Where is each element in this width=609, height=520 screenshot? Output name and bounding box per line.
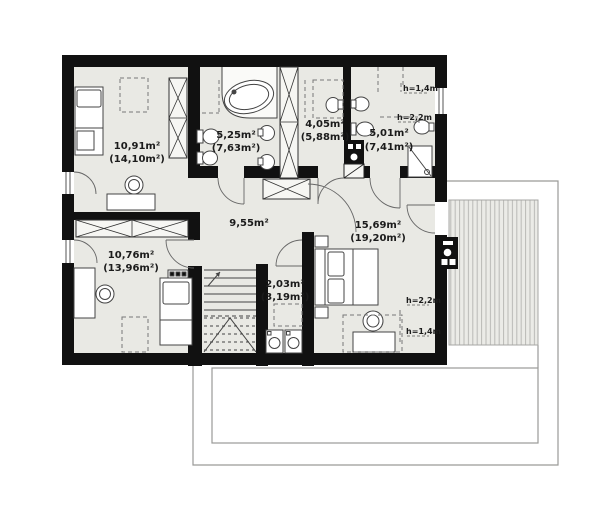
duct-stack-icon — [344, 140, 364, 178]
room-master-area: 15,69m² — [355, 220, 401, 231]
room-master-total: (19,20m²) — [350, 233, 406, 244]
room-bathroom-main-area: 5,25m² — [216, 130, 255, 141]
bed-icon — [160, 270, 192, 345]
floor-plan-page: 10,91m² (14,10m²) 5,25m² (7,63m²) 4,05m²… — [0, 0, 609, 520]
room-top-middle-total: (5,88m²) — [301, 132, 350, 143]
height-label-bottom-low: h=1,4m — [406, 327, 441, 336]
chimney-icon — [438, 237, 458, 269]
room-laundry-total: (3,19m²) — [261, 292, 310, 303]
room-bedroom-bottom-left-total: (13,96m²) — [103, 263, 159, 274]
height-label-top-mid: h=2,2m — [397, 113, 432, 122]
room-hall-area: 9,55m² — [229, 218, 268, 229]
bathtub-icon — [221, 67, 277, 119]
room-bedroom-top-left-total: (14,10m²) — [109, 154, 165, 165]
room-laundry-area: 2,03m² — [265, 279, 304, 290]
room-bathroom-top-right-total: (7,41m²) — [365, 142, 414, 153]
room-bedroom-bottom-left-area: 10,76m² — [108, 250, 154, 261]
height-label-top-low: h=1,4m — [403, 84, 438, 93]
height-label-bottom-mid: h=2,2m — [406, 296, 441, 305]
room-bathroom-main-total: (7,63m²) — [212, 143, 261, 154]
floor-plan-drawing: 10,91m² (14,10m²) 5,25m² (7,63m²) 4,05m²… — [0, 0, 609, 520]
room-bedroom-top-left-area: 10,91m² — [114, 141, 160, 152]
room-bathroom-top-right-area: 5,01m² — [369, 128, 408, 139]
room-top-middle-area: 4,05m² — [305, 119, 344, 130]
terrace — [449, 200, 538, 345]
bed-icon — [75, 87, 103, 155]
